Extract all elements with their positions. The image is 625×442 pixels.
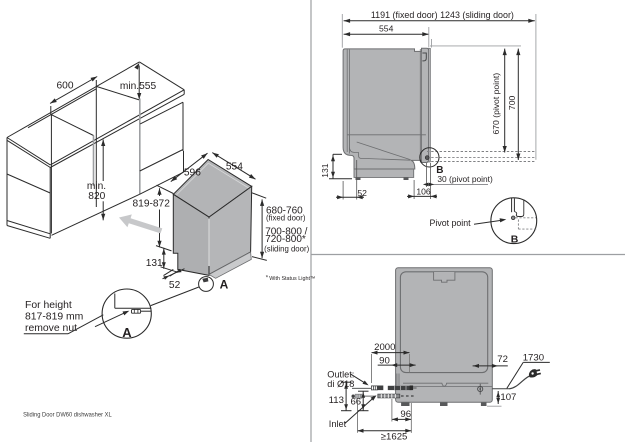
svg-text:di Ø18: di Ø18 bbox=[327, 379, 354, 389]
svg-text:A: A bbox=[122, 325, 132, 340]
svg-text:≥1625: ≥1625 bbox=[381, 432, 408, 442]
svg-text:131: 131 bbox=[320, 163, 330, 178]
svg-text:720-800*: 720-800* bbox=[265, 234, 306, 245]
svg-text:2000: 2000 bbox=[374, 342, 395, 353]
svg-text:106: 106 bbox=[416, 187, 431, 197]
svg-text:72: 72 bbox=[497, 354, 508, 365]
svg-text:107: 107 bbox=[500, 392, 516, 403]
svg-text:1191 (fixed door) 1243 (slidin: 1191 (fixed door) 1243 (sliding door) bbox=[371, 10, 514, 20]
svg-text:554: 554 bbox=[226, 162, 243, 173]
svg-text:1730: 1730 bbox=[523, 352, 544, 363]
svg-text:670 (pivot point): 670 (pivot point) bbox=[491, 73, 501, 135]
svg-text:819-872: 819-872 bbox=[133, 198, 171, 209]
svg-text:820: 820 bbox=[88, 191, 105, 202]
svg-text:600: 600 bbox=[57, 81, 74, 92]
svg-text:Pivot point: Pivot point bbox=[430, 218, 472, 228]
svg-text:B: B bbox=[511, 234, 519, 246]
svg-text:131: 131 bbox=[146, 258, 163, 269]
svg-text:90: 90 bbox=[379, 355, 390, 366]
svg-text:96: 96 bbox=[400, 409, 411, 420]
svg-text:52: 52 bbox=[357, 188, 367, 198]
svg-text:For height: For height bbox=[25, 300, 72, 311]
svg-text:A: A bbox=[220, 277, 229, 291]
svg-text:596: 596 bbox=[184, 167, 201, 178]
svg-text:52: 52 bbox=[169, 280, 181, 291]
svg-text:554: 554 bbox=[379, 24, 394, 34]
svg-text:Inlet: Inlet bbox=[329, 419, 347, 429]
svg-text:With Status Light™: With Status Light™ bbox=[269, 276, 315, 282]
svg-text:817-819 mm: 817-819 mm bbox=[25, 311, 83, 322]
svg-text:Sliding Door DW60 dishwasher X: Sliding Door DW60 dishwasher XL bbox=[23, 411, 112, 418]
svg-text:30 (pivot point): 30 (pivot point) bbox=[437, 174, 493, 184]
svg-text:700: 700 bbox=[507, 96, 517, 111]
svg-text:(fixed door): (fixed door) bbox=[266, 214, 306, 223]
svg-text:min.555: min.555 bbox=[120, 81, 157, 92]
svg-text:113: 113 bbox=[329, 395, 344, 406]
svg-text:remove nut: remove nut bbox=[25, 323, 77, 334]
svg-text:66: 66 bbox=[350, 397, 361, 408]
svg-text:(sliding door): (sliding door) bbox=[264, 245, 309, 254]
